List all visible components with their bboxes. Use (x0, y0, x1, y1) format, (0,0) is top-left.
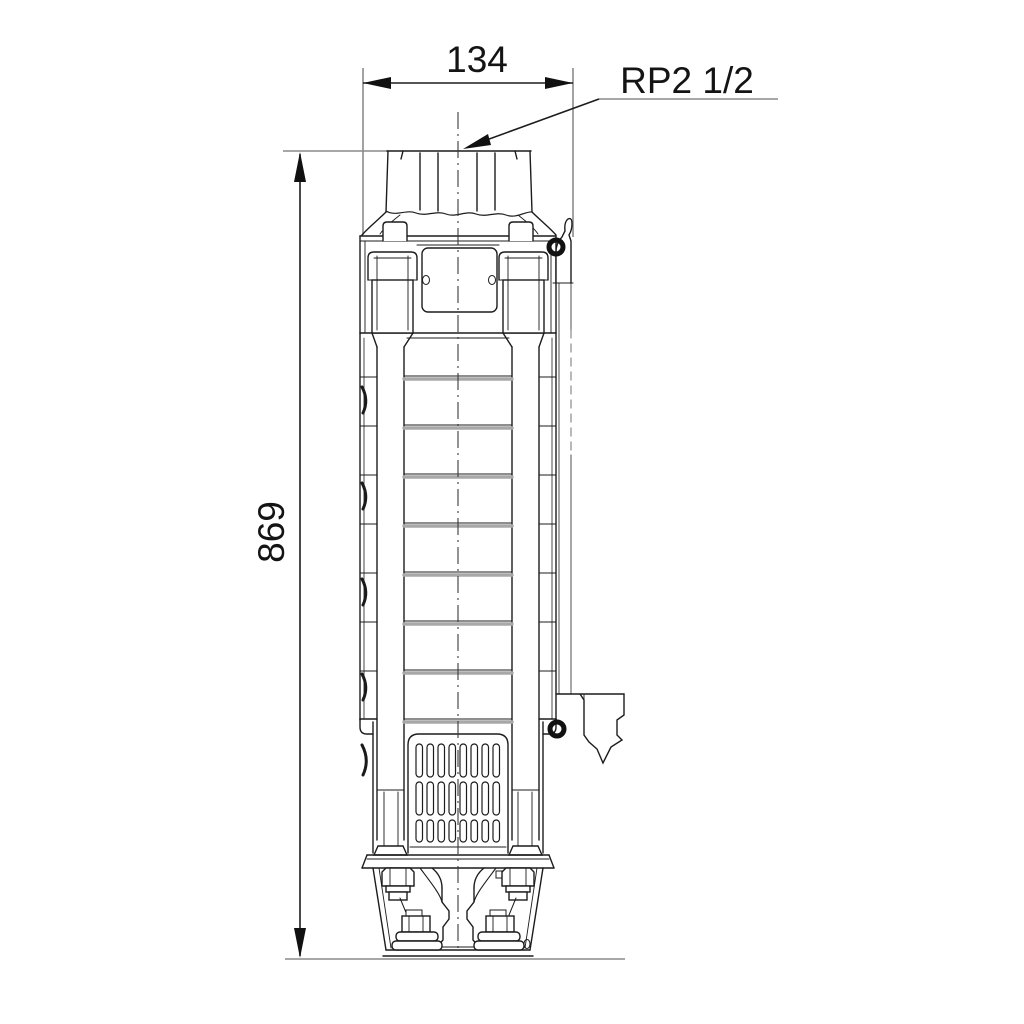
arrowhead-up-icon (294, 152, 306, 182)
cable-guard-bottom-clamp (550, 694, 624, 763)
lug-left (383, 222, 407, 241)
cable-guard-top-hook (549, 219, 573, 283)
dimension-height (294, 152, 306, 958)
arrowhead-left-icon (363, 77, 391, 89)
cable-clamp-left (368, 252, 417, 333)
technical-drawing-canvas: 134 869 RP2 1/2 (0, 0, 1024, 1024)
connection-leader (463, 99, 599, 149)
lug-right (509, 222, 533, 241)
cable-guard (549, 219, 624, 763)
motor-foot-left (392, 910, 442, 950)
nameplate (422, 248, 497, 312)
connection-label: RP2 1/2 (620, 60, 754, 101)
motor-foot-right (474, 910, 524, 950)
pump-dimension-drawing: 134 869 RP2 1/2 (0, 0, 1024, 1024)
cable-clamp-right (499, 252, 548, 333)
leader-arrowhead-icon (463, 134, 491, 149)
discharge-thread-section (386, 151, 532, 216)
arrowhead-right-icon (545, 77, 573, 89)
dim-width-label: 134 (446, 39, 508, 80)
pump-outline (360, 151, 624, 956)
flange-nut-right (496, 868, 534, 900)
extension-lines (283, 68, 778, 959)
zero-mark-icon (524, 940, 530, 949)
dim-height-label: 869 (251, 501, 292, 563)
arrowhead-down-icon (294, 928, 306, 958)
guard-screw-bottom-icon (550, 722, 564, 736)
flange-nut-left (382, 868, 414, 900)
